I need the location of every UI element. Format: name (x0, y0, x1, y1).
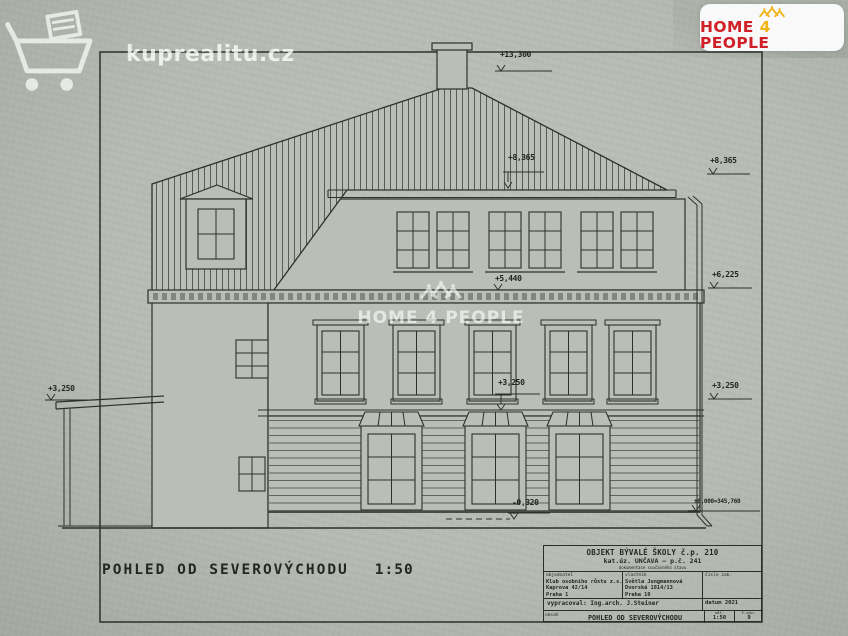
porch (56, 396, 164, 526)
client-cell: objednatel Klub osobního růstu z.s. Kapr… (544, 571, 622, 598)
title-block-header: OBJEKT BÝVALÉ ŠKOLY č.p. 210 kat.úz. UNČ… (544, 546, 761, 571)
kuprealitu-watermark: kuprealitu.cz (4, 8, 295, 100)
dormer-window (180, 185, 253, 269)
order-number-cell: číslo zak. (702, 571, 763, 598)
owner-street: Dvorská 1814/13 (625, 585, 700, 592)
elevation-label-porch: +3,250 (48, 384, 75, 393)
elevation-label-ground-recess: -0,320 (512, 498, 539, 507)
order-number-label: číslo zak. (705, 573, 761, 579)
caption-title: POHLED OD SEVEROVÝCHODU (102, 562, 349, 578)
scanned-elevation-page: +13,300 +8,365 +8,365 +5,440 +6,225 +3,2… (0, 0, 848, 636)
elevation-label-right-upper: +8,365 (710, 156, 737, 165)
object-cadastre: kat.úz. UNČAVA – p.č. 241 (544, 557, 761, 565)
caption-scale: 1:50 (375, 562, 414, 578)
scale-value: 1:50 (705, 615, 734, 621)
elevation-label-datum: ±0,000=345,760 (694, 498, 740, 505)
content-label: obsah (544, 610, 566, 623)
home4people-badge: HOME 4 PEOPLE (700, 4, 844, 51)
center-watermark-text: HOME 4 PEOPLE (356, 308, 526, 328)
sheet-number-cell: č.výkr. 9 (734, 610, 763, 623)
elevation-label-sill-band: +3,250 (498, 378, 525, 387)
owner-cell: vlastník Světla Jungmannová Dvorská 1814… (622, 571, 702, 598)
sheet-number-value: 9 (735, 615, 763, 621)
title-block: OBJEKT BÝVALÉ ŠKOLY č.p. 210 kat.úz. UNČ… (543, 545, 762, 622)
client-street: Kaprova 42/14 (546, 585, 620, 592)
badge-word-people: PEOPLE (700, 34, 769, 52)
kuprealitu-text: kuprealitu.cz (126, 42, 295, 67)
object-title: OBJEKT BÝVALÉ ŠKOLY č.p. 210 (544, 548, 761, 557)
elevation-label-right-lower: +3,250 (712, 381, 739, 390)
scale-cell: měř. 1:50 (704, 610, 734, 623)
date-cell: datum 2021 (702, 598, 763, 610)
object-subtitle: dokumentace současného stavu (544, 565, 761, 570)
client-name: Klub osobního růstu z.s. (546, 579, 620, 586)
content-value: POHLED OD SEVEROVÝCHODU (566, 610, 704, 623)
date-label: datum (705, 600, 722, 606)
crown-houses-watermark-icon (415, 278, 467, 304)
author-label: vypracoval: (547, 600, 587, 607)
drawing-caption: POHLED OD SEVEROVÝCHODU1:50 (102, 562, 414, 578)
chimney (432, 43, 472, 89)
ground-floor-windows (359, 412, 612, 510)
center-watermark: HOME 4 PEOPLE (356, 278, 526, 328)
elevation-label-chimney: +13,300 (500, 50, 531, 59)
home4people-text: HOME 4 PEOPLE (700, 20, 844, 51)
elevation-label-right-middle: +6,225 (712, 270, 739, 279)
author-name: Ing.arch. J.Steiner (590, 600, 659, 607)
shopping-cart-icon (4, 8, 112, 100)
elevation-label-eaves: +8,365 (508, 153, 535, 162)
date-value: 2021 (725, 600, 738, 606)
author-cell: vypracoval: Ing.arch. J.Steiner (544, 598, 702, 610)
